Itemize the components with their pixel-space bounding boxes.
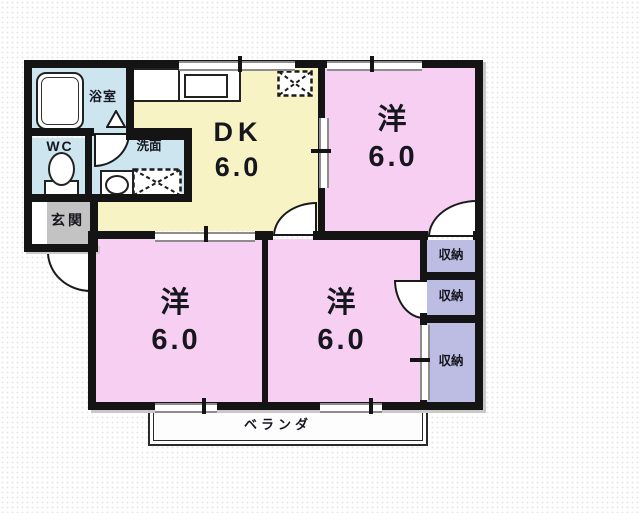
dk-name: DK xyxy=(214,119,263,146)
washroom-label: 洗面 xyxy=(132,140,166,153)
window-dk-top xyxy=(179,61,295,71)
entrance-label: 玄関 xyxy=(46,213,90,227)
western-room-top-size: 6.0 xyxy=(368,143,417,172)
wall-wc-washroom xyxy=(85,128,92,202)
window-top-room xyxy=(327,61,422,71)
dk-size: 6.0 xyxy=(215,154,262,181)
wall-washroom-right xyxy=(184,128,192,202)
western-room-bottom-left-size: 6.0 xyxy=(151,326,200,355)
wall-entrance-right xyxy=(90,194,98,252)
wall-bottom-left-room-left xyxy=(88,231,96,410)
bathtub xyxy=(36,72,84,130)
refrigerator-space-icon xyxy=(277,70,313,97)
kitchen-sink xyxy=(184,74,228,98)
western-room-top-label: 洋 6.0 xyxy=(348,100,438,178)
bathtub-inner-line xyxy=(41,77,79,125)
wall-closet-divider-2 xyxy=(420,315,475,323)
dk-floor-corridor xyxy=(98,202,192,231)
wall-closet-divider-1 xyxy=(420,272,475,280)
floorplan-canvas: ベランダ xyxy=(0,0,640,513)
wc-label: WC xyxy=(38,139,82,153)
wall-mid-c xyxy=(313,231,428,240)
bathroom-label: 浴室 xyxy=(80,90,126,103)
western-room-bottom-right-size: 6.0 xyxy=(317,326,366,355)
closet-1-label: 収納 xyxy=(427,249,475,262)
entrance-door-arc xyxy=(47,252,91,292)
tick-sliding-dk-bottom-left xyxy=(204,226,208,242)
closet-2-doorway xyxy=(420,282,427,313)
wall-outer-left xyxy=(24,60,32,252)
western-room-top-name: 洋 xyxy=(377,106,408,135)
tick-window-bottom-left xyxy=(202,398,206,414)
entrance-step xyxy=(32,202,47,244)
western-room-bottom-right-name: 洋 xyxy=(326,289,357,318)
dk-label: DK 6.0 xyxy=(195,112,281,188)
western-room-bottom-left-name: 洋 xyxy=(160,289,191,318)
kitchen-counter-divider xyxy=(178,70,180,100)
wall-entrance-bottom xyxy=(24,244,98,252)
veranda-label: ベランダ xyxy=(218,418,338,431)
wall-bottom-rooms-divider xyxy=(262,231,268,410)
western-room-bottom-left-label: 洋 6.0 xyxy=(131,284,221,360)
tick-window-top-room xyxy=(370,56,374,72)
tick-window-bottom-right xyxy=(369,398,373,414)
toilet-bowl xyxy=(48,152,75,186)
sliding-door-dk-top-room xyxy=(319,118,329,188)
wall-wc-washroom-bottom xyxy=(24,194,192,202)
washroom-sink-basin xyxy=(105,175,129,195)
wall-mid-d xyxy=(473,231,483,240)
window-bottom-left-room xyxy=(155,403,217,413)
closet-2-label: 収納 xyxy=(427,290,475,303)
tick-sliding-dk-top-room xyxy=(311,149,331,153)
bath-door-triangle-icon xyxy=(106,110,126,128)
washing-machine-space-icon xyxy=(132,168,182,197)
tick-window-dk-top xyxy=(238,56,242,72)
wall-mid-a xyxy=(88,231,155,239)
western-room-bottom-right-label: 洋 6.0 xyxy=(297,284,387,360)
closet-3-label: 収納 xyxy=(427,355,475,368)
